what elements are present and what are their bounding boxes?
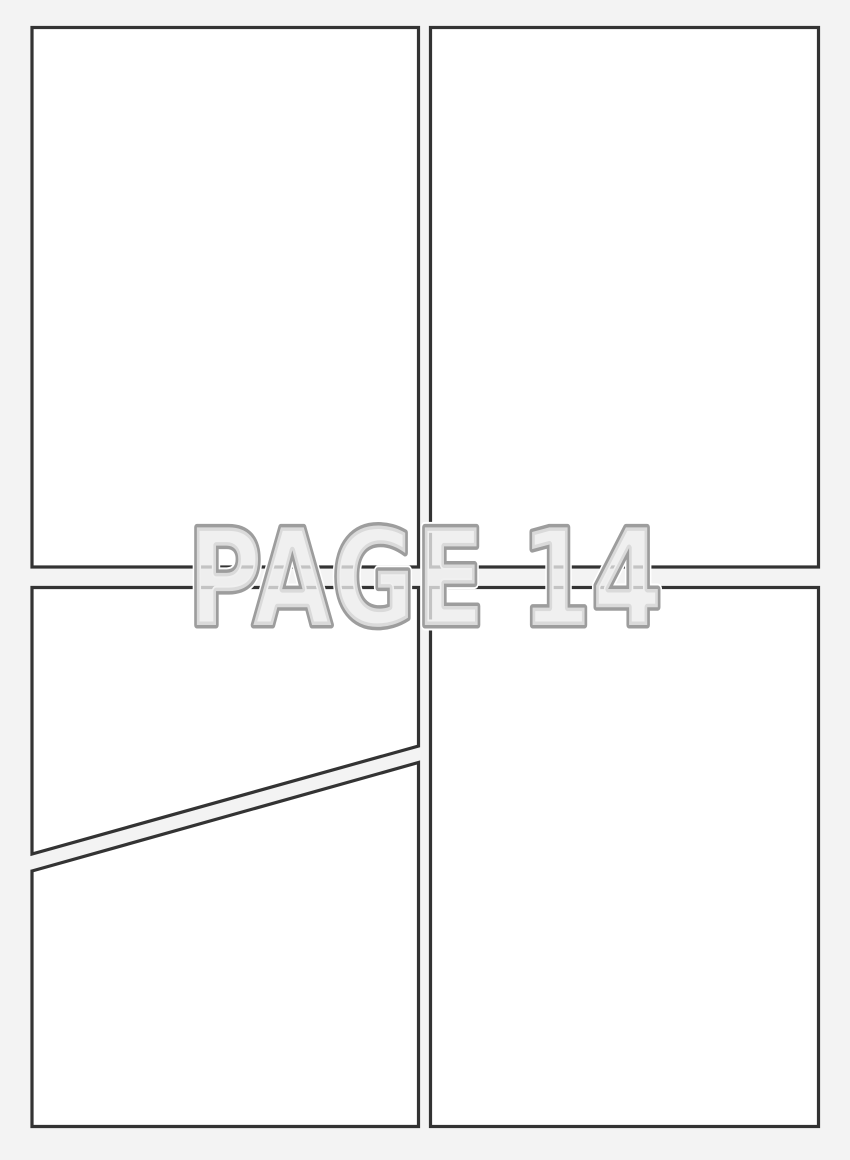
comic-page-template: PAGE 14 PAGE 14: [0, 0, 850, 1160]
panel-bottom-right-fill: [431, 588, 819, 1127]
panel-top-right-fill: [431, 28, 819, 568]
comic-page-canvas: PAGE 14 PAGE 14: [0, 0, 850, 1160]
page-label-text: PAGE 14: [188, 501, 663, 657]
panel-top-left-fill: [32, 28, 419, 568]
page-label: PAGE 14 PAGE 14: [188, 501, 663, 657]
